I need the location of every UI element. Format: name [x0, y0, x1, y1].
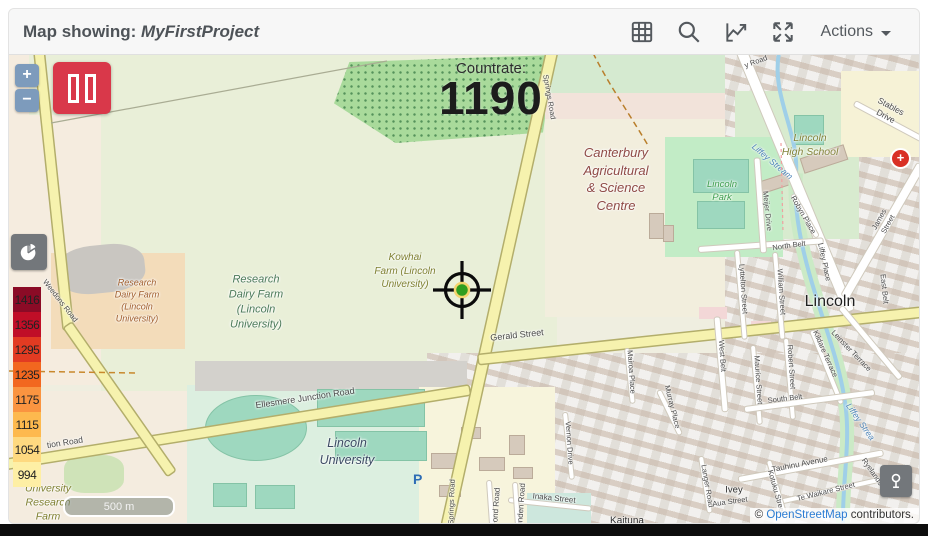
legend-band: 1115: [13, 412, 41, 437]
search-icon[interactable]: [676, 19, 702, 45]
medical-marker-icon[interactable]: +: [892, 150, 909, 167]
fullscreen-icon[interactable]: [770, 19, 796, 45]
map-area: [545, 55, 749, 93]
page-title-prefix: Map showing:: [23, 22, 141, 41]
parking-icon: P: [413, 471, 422, 487]
building: [479, 457, 505, 471]
pie-chart-button[interactable]: [11, 234, 47, 270]
actions-label: Actions: [821, 23, 873, 41]
building: [513, 467, 533, 479]
actions-menu-button[interactable]: Actions: [821, 23, 891, 41]
scale-label: 500 m: [104, 501, 135, 513]
sports-pitch: [335, 431, 427, 461]
header-bar: Map showing: MyFirstProject Actions: [9, 9, 919, 55]
legend-band: 1295: [13, 337, 41, 362]
legend-band: 1235: [13, 362, 41, 387]
sports-pitch: [255, 485, 295, 509]
legend-band: 1175: [13, 387, 41, 412]
attribution-suffix: contributors.: [848, 509, 914, 521]
sports-pitch: [794, 115, 824, 145]
chevron-down-icon: [881, 31, 891, 36]
map-viewport[interactable]: Research Dairy Farm (Lincoln University)…: [9, 55, 919, 523]
attribution-prefix: ©: [755, 509, 767, 521]
sports-pitch: [693, 159, 749, 193]
heat-legend: 1416135612951235117511151054994: [13, 287, 41, 487]
attribution: © OpenStreetMap contributors.: [750, 508, 919, 523]
bottom-black-bar: [0, 524, 928, 536]
pause-button[interactable]: [53, 62, 111, 114]
zoom-out-button[interactable]: −: [15, 89, 39, 112]
app-card: Map showing: MyFirstProject Actions: [8, 8, 920, 524]
map-area: [699, 307, 727, 319]
building: [663, 225, 674, 242]
grid-icon[interactable]: [629, 19, 655, 45]
legend-band: 1356: [13, 312, 41, 337]
sports-pitch: [697, 201, 745, 229]
map-pin-icon: [886, 471, 906, 491]
pie-chart-icon: [18, 241, 40, 263]
building: [509, 435, 525, 455]
plus-glyph: +: [897, 150, 905, 165]
project-name: MyFirstProject: [141, 22, 259, 41]
pause-icon: [68, 74, 79, 103]
openstreetmap-link[interactable]: OpenStreetMap: [766, 509, 847, 521]
locate-pin-button[interactable]: [880, 465, 912, 497]
sports-pitch: [213, 483, 247, 507]
scale-bar: 500 m: [63, 496, 175, 517]
map-area: [545, 93, 749, 119]
header-toolbar: Actions: [629, 19, 891, 45]
map-area: [665, 137, 783, 257]
pause-icon: [85, 74, 96, 103]
zoom-in-button[interactable]: +: [15, 64, 39, 87]
legend-band: 1054: [13, 437, 41, 462]
legend-band: 994: [13, 462, 41, 487]
legend-band: 1416: [13, 287, 41, 312]
chart-icon[interactable]: [723, 19, 749, 45]
page-title: Map showing: MyFirstProject: [23, 22, 259, 42]
building: [649, 213, 664, 239]
map-area: [64, 455, 124, 493]
